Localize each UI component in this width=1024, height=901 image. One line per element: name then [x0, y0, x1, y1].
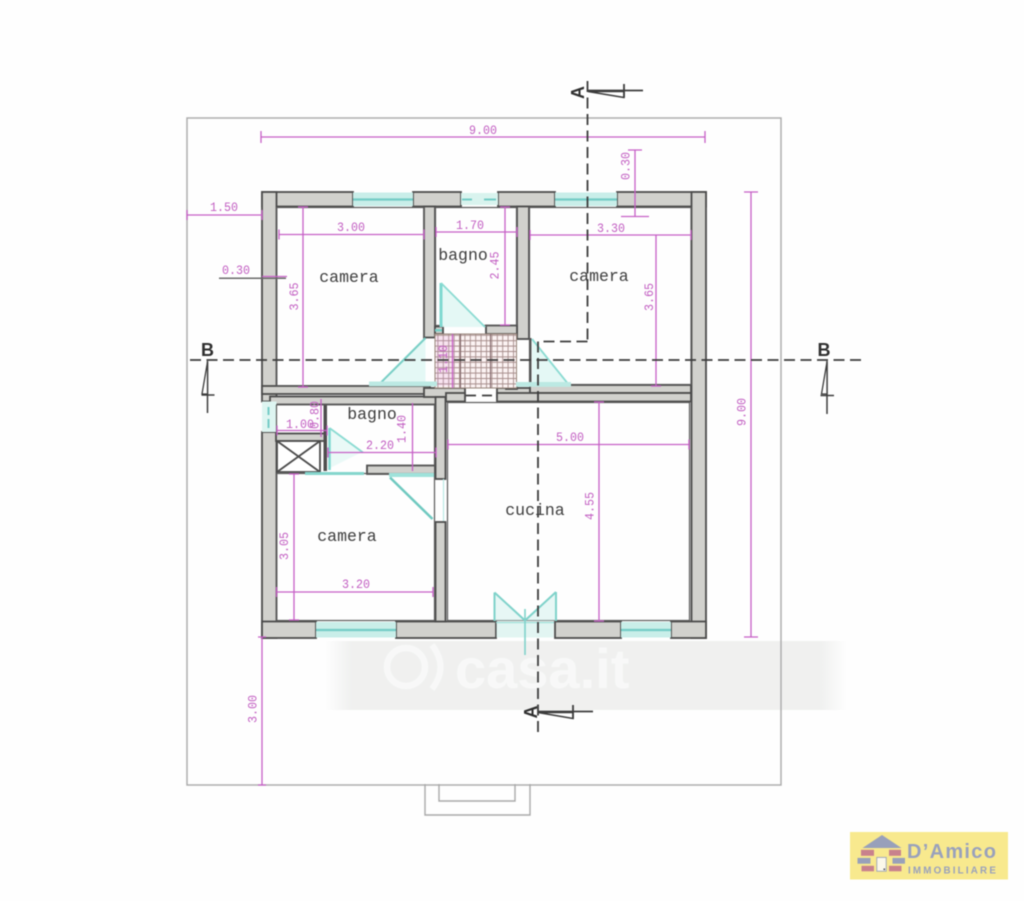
svg-text:B: B — [818, 340, 831, 360]
svg-text:camera: camera — [319, 268, 379, 287]
svg-text:1.70: 1.70 — [456, 218, 484, 233]
svg-text:A: A — [568, 86, 588, 99]
svg-text:5.00: 5.00 — [556, 430, 584, 445]
svg-text:B: B — [201, 340, 214, 360]
svg-text:D’Amico: D’Amico — [907, 841, 997, 863]
svg-text:1.50: 1.50 — [210, 200, 238, 215]
svg-text:3.65: 3.65 — [642, 283, 657, 311]
svg-text:1.10: 1.10 — [436, 345, 451, 373]
svg-text:bagno: bagno — [438, 246, 488, 265]
svg-text:0.30: 0.30 — [222, 263, 250, 278]
svg-text:camera: camera — [569, 267, 629, 286]
svg-text:4.55: 4.55 — [583, 492, 598, 520]
svg-text:3.05: 3.05 — [277, 532, 292, 560]
svg-text:3.00: 3.00 — [246, 695, 261, 723]
svg-text:2.20: 2.20 — [366, 438, 394, 453]
svg-text:3.20: 3.20 — [342, 577, 370, 592]
svg-text:9.00: 9.00 — [735, 398, 750, 426]
svg-text:2.45: 2.45 — [488, 252, 503, 280]
svg-text:cucina: cucina — [505, 501, 565, 520]
svg-text:0.80: 0.80 — [308, 401, 323, 429]
svg-text:IMMOBILIARE: IMMOBILIARE — [908, 866, 998, 877]
svg-text:9.00: 9.00 — [469, 123, 497, 138]
svg-text:A: A — [521, 706, 541, 719]
svg-text:3.30: 3.30 — [597, 221, 625, 236]
svg-text:0.30: 0.30 — [619, 152, 634, 180]
svg-text:bagno: bagno — [347, 405, 397, 424]
svg-text:casa.it: casa.it — [455, 637, 629, 700]
svg-text:3.00: 3.00 — [337, 220, 365, 235]
svg-text:camera: camera — [317, 527, 377, 546]
svg-text:3.65: 3.65 — [287, 283, 302, 311]
